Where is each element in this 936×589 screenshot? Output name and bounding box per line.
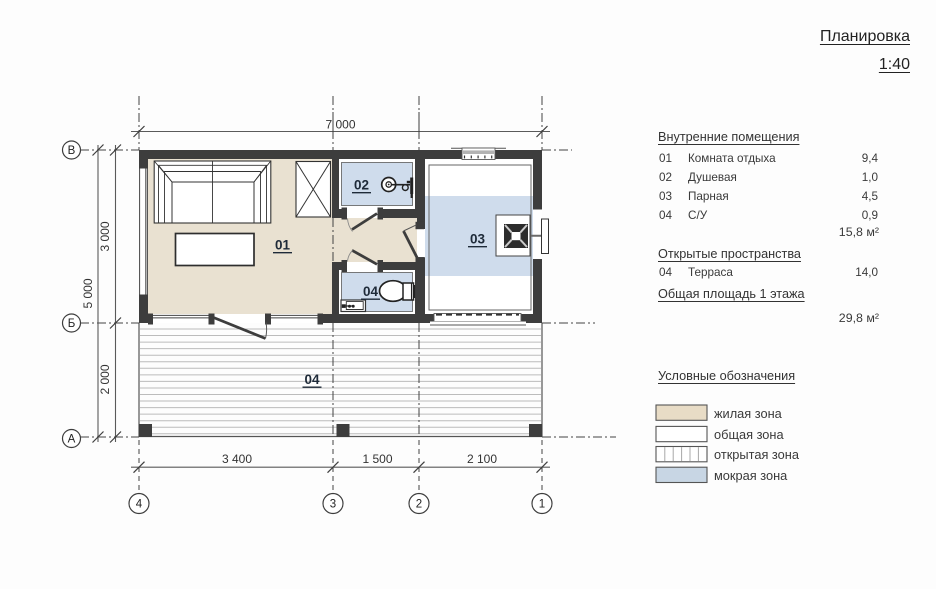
svg-text:03: 03 xyxy=(470,232,486,247)
svg-text:А: А xyxy=(68,434,76,446)
svg-text:04: 04 xyxy=(363,284,379,299)
svg-text:3: 3 xyxy=(330,499,336,511)
svg-text:01: 01 xyxy=(275,238,291,253)
svg-text:3 000: 3 000 xyxy=(98,221,112,251)
svg-text:1: 1 xyxy=(539,499,545,511)
svg-text:1 500: 1 500 xyxy=(362,452,392,466)
svg-text:5 000: 5 000 xyxy=(81,278,95,308)
svg-text:Б: Б xyxy=(68,318,76,330)
svg-text:2 000: 2 000 xyxy=(98,364,112,394)
svg-text:02: 02 xyxy=(354,178,369,193)
svg-text:2 100: 2 100 xyxy=(467,452,497,466)
svg-text:В: В xyxy=(68,145,76,157)
svg-text:2: 2 xyxy=(416,499,422,511)
svg-text:04: 04 xyxy=(304,372,320,387)
svg-text:4: 4 xyxy=(136,499,143,511)
svg-text:3 400: 3 400 xyxy=(222,452,252,466)
svg-text:7 000: 7 000 xyxy=(325,118,355,132)
